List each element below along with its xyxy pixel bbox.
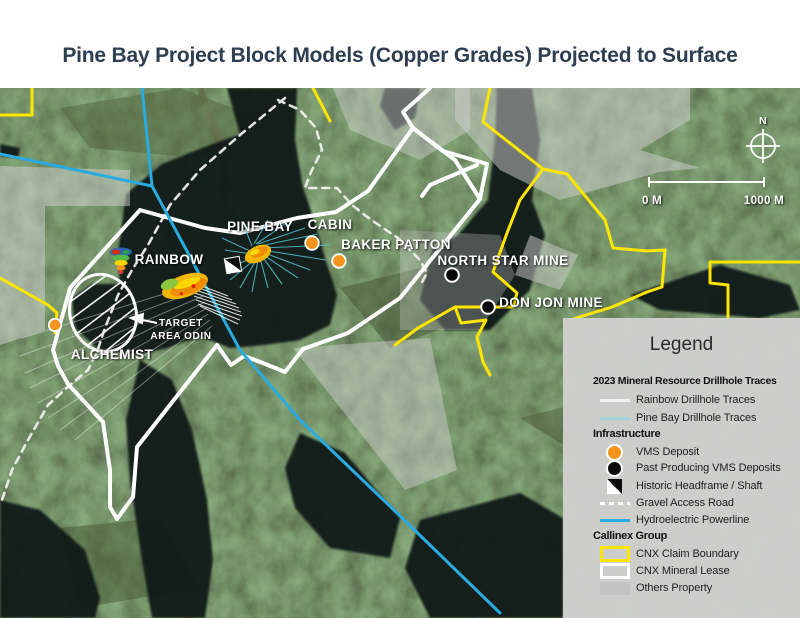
legend-title: Legend — [563, 334, 800, 356]
legend-row-rainbow-traces: Rainbow Drillhole Traces — [593, 392, 796, 408]
vms-deposit-swatch-icon — [606, 444, 623, 461]
headframe-icon — [224, 256, 241, 273]
pine-bay-trace-swatch — [600, 417, 630, 420]
label-north-star-mine: NORTH STAR MINE — [438, 253, 569, 268]
compass-north-label: N — [759, 115, 767, 127]
legend-heading-callinex: Callinex Group — [593, 530, 794, 542]
legend-label: Historic Headframe / Shaft — [636, 480, 762, 492]
scale-bar-end-label: 1000 M — [744, 195, 784, 207]
headframe-swatch-icon — [607, 479, 622, 494]
legend-heading-infrastructure: Infrastructure — [593, 428, 794, 440]
past-vms-swatch-icon — [606, 460, 623, 477]
legend-row-pinebay-traces: Pine Bay Drillhole Traces — [593, 410, 796, 426]
rainbow-trace-swatch — [600, 399, 630, 402]
legend-label: Rainbow Drillhole Traces — [636, 394, 755, 406]
legend-label: Others Property — [636, 582, 712, 594]
page-title: Pine Bay Project Block Models (Copper Gr… — [62, 20, 737, 68]
legend-row-claim-boundary: CNX Claim Boundary — [593, 546, 796, 562]
legend-panel: Legend 2023 Mineral Resource Drillhole T… — [563, 318, 800, 618]
label-rainbow: RAINBOW — [135, 252, 204, 267]
legend-label: CNX Mineral Lease — [636, 565, 730, 577]
page-header: Pine Bay Project Block Models (Copper Gr… — [0, 0, 800, 88]
gravel-road-swatch — [600, 502, 630, 505]
label-don-jon-mine: DON JON MINE — [499, 295, 603, 310]
legend-row-gravel-road: Gravel Access Road — [593, 495, 796, 511]
label-target-area-line2: AREA ODIN — [150, 331, 211, 342]
legend-label: CNX Claim Boundary — [636, 548, 739, 560]
label-alchemist: ALCHEMIST — [71, 347, 154, 362]
label-pine-bay: PINE BAY — [227, 219, 293, 234]
others-property-swatch — [600, 582, 630, 595]
legend-label: Gravel Access Road — [636, 497, 734, 509]
legend-row-others-property: Others Property — [593, 580, 796, 596]
claim-boundary-swatch — [600, 546, 630, 562]
legend-row-past-vms: Past Producing VMS Deposits — [593, 460, 796, 476]
powerline-swatch — [600, 519, 630, 522]
legend-heading-drillholes: 2023 Mineral Resource Drillhole Traces — [593, 375, 794, 387]
mineral-lease-swatch — [600, 563, 630, 579]
scale-bar-start-label: 0 M — [642, 195, 662, 207]
legend-label: Past Producing VMS Deposits — [636, 462, 781, 474]
label-baker-patton: BAKER PATTON — [341, 237, 451, 252]
label-target-area-line1: TARGET — [159, 318, 203, 329]
legend-label: Hydroelectric Powerline — [636, 514, 749, 526]
legend-label: VMS Deposit — [636, 446, 699, 458]
legend-row-mineral-lease: CNX Mineral Lease — [593, 563, 796, 579]
legend-row-headframe: Historic Headframe / Shaft — [593, 478, 796, 494]
label-cabin: CABIN — [308, 217, 353, 232]
legend-row-powerline: Hydroelectric Powerline — [593, 512, 796, 528]
legend-row-vms: VMS Deposit — [593, 444, 796, 460]
legend-label: Pine Bay Drillhole Traces — [636, 412, 756, 424]
